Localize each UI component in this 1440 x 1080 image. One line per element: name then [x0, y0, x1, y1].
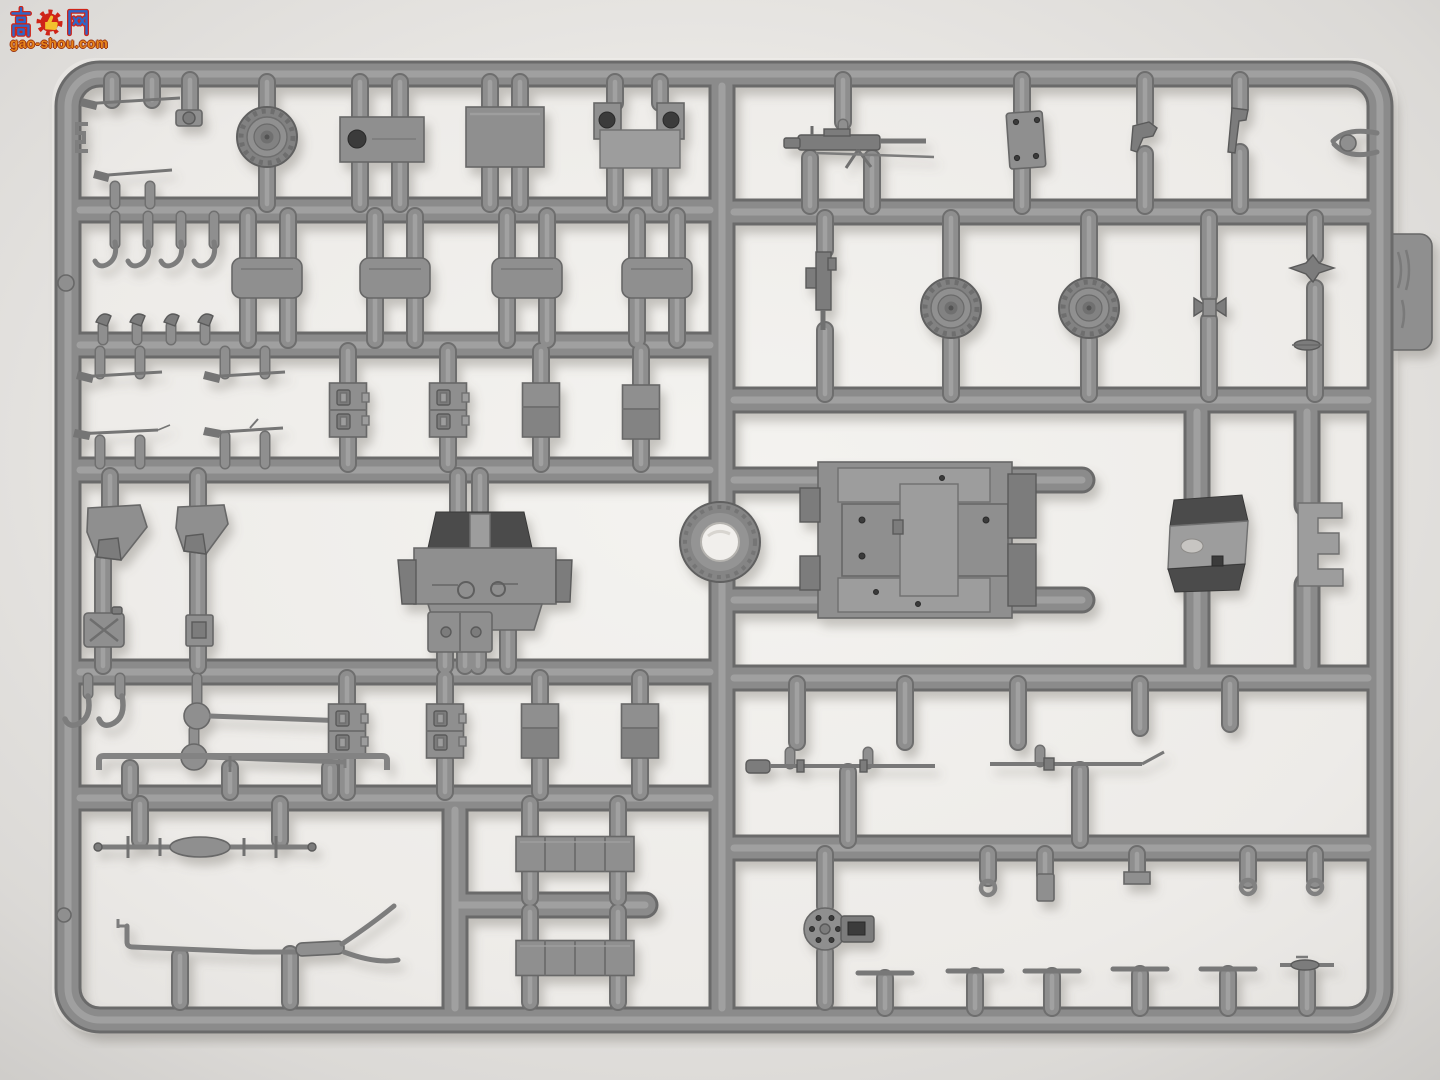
frame-knob — [58, 275, 74, 291]
small-winged-part — [1292, 340, 1322, 350]
hinged-box-part — [329, 704, 369, 758]
wang-glyph — [65, 6, 91, 38]
angled-plate-face — [184, 534, 206, 554]
gear-thumb-icon — [36, 9, 63, 36]
gao-glyph — [8, 6, 34, 38]
hinged-box-part — [427, 704, 467, 758]
stowage-box-part — [522, 704, 559, 758]
sprue-photo-canvas — [0, 0, 1440, 1080]
watermark-url: gao-shou.com — [8, 36, 108, 51]
clamp-block-part — [1194, 298, 1226, 316]
road-wheel-part — [1059, 278, 1119, 338]
angled-plate-face — [97, 538, 121, 560]
fender-part — [232, 258, 302, 298]
stowage-box-part — [428, 612, 492, 652]
e-bracket-part — [1298, 503, 1343, 586]
armor-bracket-part — [1168, 495, 1248, 592]
road-wheel-part — [237, 107, 297, 167]
hinged-box-part — [330, 383, 370, 437]
plate-with-hole-part — [340, 117, 424, 162]
watermark-logo-row: 高 网 — [8, 5, 108, 39]
road-wheel-part — [921, 278, 981, 338]
bracket-plate-part — [1006, 111, 1046, 169]
plate-part — [1124, 872, 1150, 884]
frame-knob — [57, 908, 71, 922]
gun-cradle-block-part — [800, 462, 1036, 618]
stowage-box-part — [623, 385, 660, 439]
stowage-box-part — [622, 704, 659, 758]
jerry-can-part — [84, 607, 124, 647]
flat-panel-part — [466, 107, 544, 167]
watermark: 高 网 gao-shou.com — [8, 5, 108, 51]
fender-part — [360, 258, 430, 298]
fender-part — [622, 258, 692, 298]
ammo-crate-strip-part — [516, 837, 634, 872]
valve-part — [176, 110, 202, 126]
tag-part — [1037, 874, 1054, 901]
ammo-crate-strip-part — [516, 941, 634, 976]
sprue-photo: 高 网 gao-shou.com — [0, 0, 1440, 1080]
hinged-box-part — [430, 383, 470, 437]
stowage-box-part — [523, 383, 560, 437]
fender-part — [492, 258, 562, 298]
spare-tire-part — [680, 502, 760, 582]
latch-box-part — [186, 615, 213, 646]
